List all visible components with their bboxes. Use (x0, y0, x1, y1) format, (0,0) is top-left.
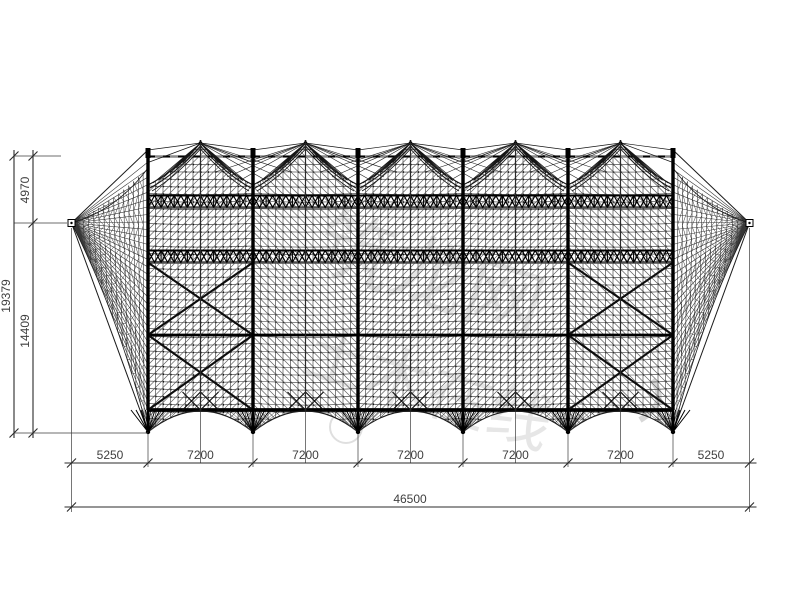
svg-text:7200: 7200 (397, 448, 424, 462)
svg-text:46500: 46500 (393, 492, 427, 506)
svg-text:4970: 4970 (18, 176, 32, 203)
svg-text:19379: 19379 (0, 279, 13, 313)
svg-text:5250: 5250 (97, 448, 124, 462)
svg-text:7200: 7200 (502, 448, 529, 462)
svg-text:7200: 7200 (187, 448, 214, 462)
svg-text:5250: 5250 (698, 448, 725, 462)
svg-text:7200: 7200 (607, 448, 634, 462)
svg-text:7200: 7200 (292, 448, 319, 462)
svg-text:14409: 14409 (18, 314, 32, 348)
